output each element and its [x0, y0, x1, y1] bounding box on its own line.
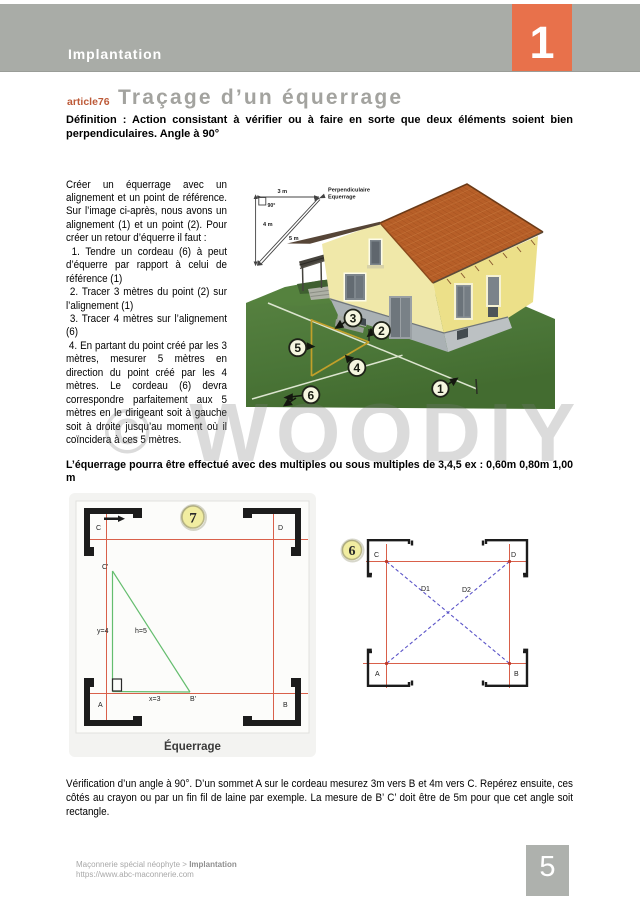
svg-text:A: A: [375, 671, 380, 678]
svg-text:B: B: [283, 702, 288, 709]
svg-text:4 m: 4 m: [263, 222, 273, 228]
svg-text:C': C': [102, 564, 108, 571]
svg-text:y=4: y=4: [97, 628, 109, 635]
svg-text:5: 5: [294, 341, 301, 355]
svg-text:x=3: x=3: [149, 696, 161, 703]
svg-text:7: 7: [189, 511, 197, 527]
svg-text:4: 4: [354, 361, 361, 375]
svg-text:C: C: [96, 525, 101, 532]
svg-text:Perpendiculaire: Perpendiculaire: [328, 188, 370, 194]
svg-text:Equerrage: Equerrage: [328, 195, 356, 201]
svg-text:90°: 90°: [268, 203, 276, 209]
svg-text:6: 6: [349, 544, 356, 559]
svg-text:3 m: 3 m: [278, 189, 288, 195]
svg-text:D1: D1: [421, 586, 430, 593]
svg-text:B': B': [190, 696, 196, 703]
svg-text:C: C: [374, 552, 379, 559]
svg-text:D: D: [278, 525, 283, 532]
svg-text:h=5: h=5: [135, 628, 147, 635]
svg-text:D: D: [511, 552, 516, 559]
svg-text:B: B: [514, 671, 519, 678]
svg-text:3: 3: [350, 312, 357, 326]
svg-text:5 m: 5 m: [289, 236, 299, 242]
svg-text:A: A: [98, 702, 103, 709]
svg-text:2: 2: [378, 324, 385, 338]
svg-text:D2: D2: [462, 587, 471, 594]
